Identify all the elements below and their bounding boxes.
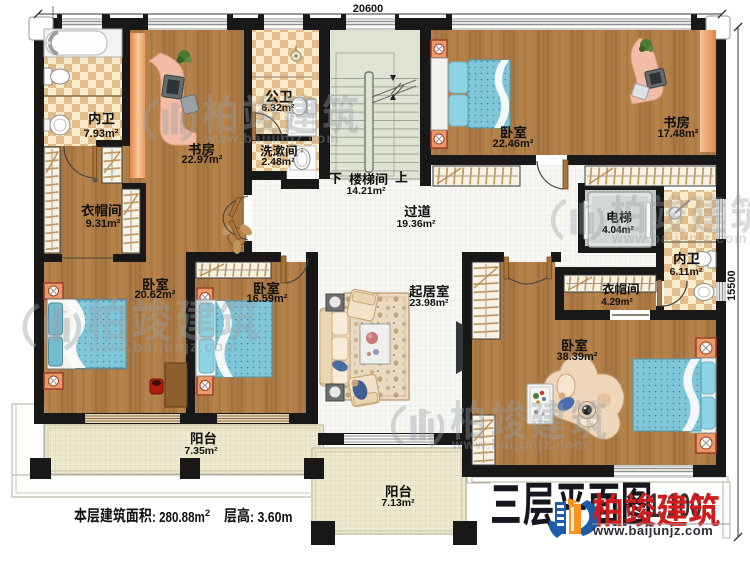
svg-text:23.98m²: 23.98m² bbox=[409, 297, 449, 309]
svg-text:www.baijunjz.com: www.baijunjz.com bbox=[451, 437, 588, 452]
svg-text:38.39m²: 38.39m² bbox=[557, 351, 598, 363]
svg-text:7.35m²: 7.35m² bbox=[184, 445, 218, 457]
svg-text:www.baijunjz.com: www.baijunjz.com bbox=[89, 340, 239, 356]
svg-text:22.46m²: 22.46m² bbox=[493, 138, 534, 150]
svg-text:2: 2 bbox=[205, 508, 210, 518]
svg-text:17.48m²: 17.48m² bbox=[658, 128, 699, 140]
svg-text:www.baijunjz.com: www.baijunjz.com bbox=[592, 523, 713, 538]
svg-text:: 3.60m: : 3.60m bbox=[250, 509, 292, 525]
svg-text:www.baijunjz.com: www.baijunjz.com bbox=[611, 231, 748, 246]
svg-text:6.11m²: 6.11m² bbox=[670, 266, 703, 278]
svg-text:20600: 20600 bbox=[353, 3, 384, 15]
svg-text:22.97m²: 22.97m² bbox=[182, 154, 223, 166]
svg-text:14.21m²: 14.21m² bbox=[346, 185, 386, 197]
svg-text:9.31m²: 9.31m² bbox=[86, 218, 121, 230]
svg-text:19.36m²: 19.36m² bbox=[396, 218, 436, 230]
svg-text:www.baijunjz.com: www.baijunjz.com bbox=[203, 131, 340, 146]
svg-text:: 280.88m: : 280.88m bbox=[152, 509, 205, 526]
svg-text:2.48m²: 2.48m² bbox=[261, 156, 295, 168]
svg-text:15500: 15500 bbox=[726, 270, 738, 301]
svg-text:7.93m²: 7.93m² bbox=[84, 128, 119, 140]
svg-text:4.29m²: 4.29m² bbox=[601, 297, 633, 308]
svg-text:7.13m²: 7.13m² bbox=[381, 497, 415, 509]
